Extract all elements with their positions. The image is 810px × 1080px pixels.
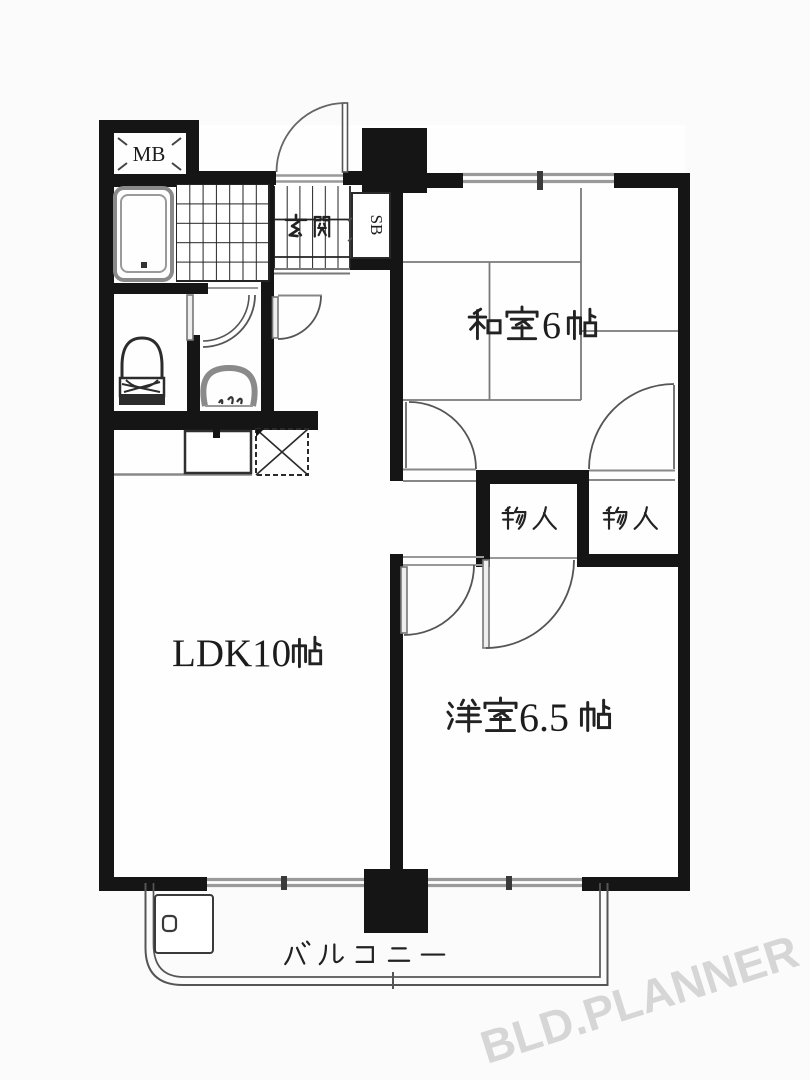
svg-text:MB: MB (133, 142, 166, 166)
svg-text:LDK10: LDK10 (172, 632, 291, 675)
svg-text:6.5: 6.5 (519, 695, 569, 740)
svg-text:SB: SB (367, 215, 386, 236)
svg-text:6: 6 (542, 305, 561, 347)
